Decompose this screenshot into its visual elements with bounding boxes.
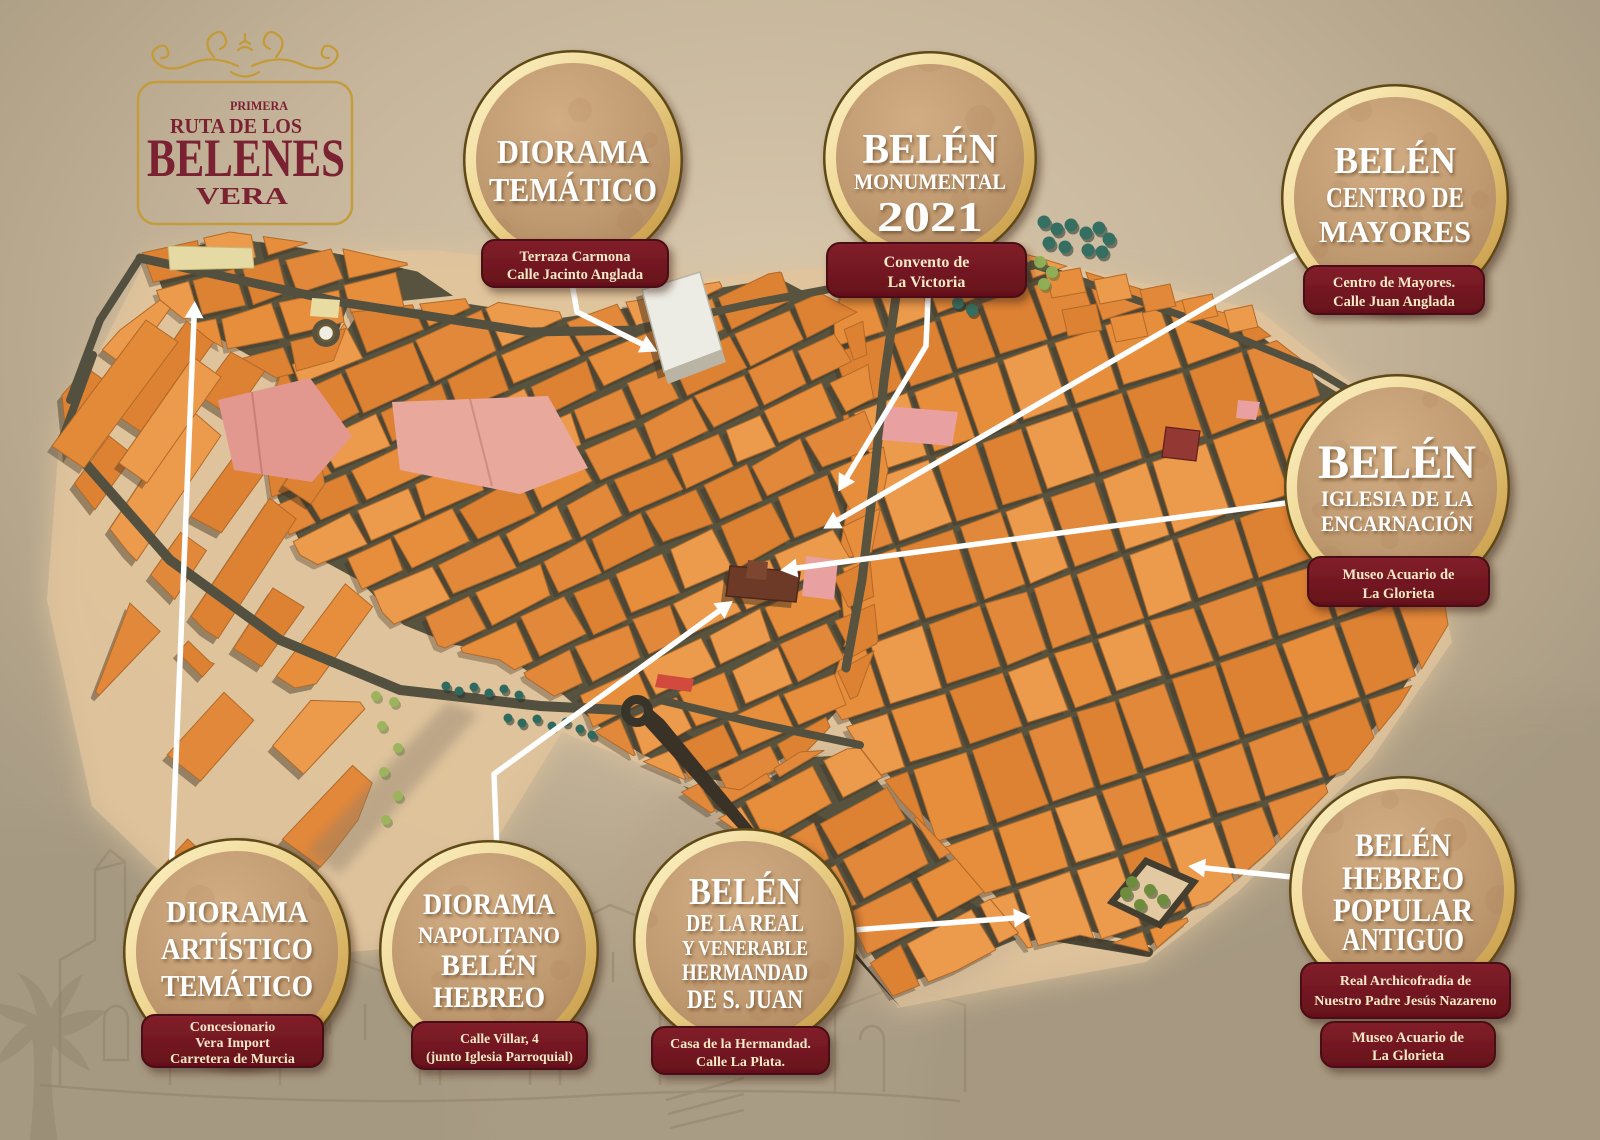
svg-text:Concesionario: Concesionario xyxy=(190,1020,276,1035)
svg-text:HEBREO: HEBREO xyxy=(1342,861,1464,897)
svg-text:(junto Iglesia Parroquial): (junto Iglesia Parroquial) xyxy=(426,1049,573,1064)
svg-text:Casa de la Hermandad.: Casa de la Hermandad. xyxy=(670,1037,811,1052)
svg-text:PRIMERA: PRIMERA xyxy=(230,99,288,113)
svg-text:Museo Acuario de: Museo Acuario de xyxy=(1343,567,1456,583)
svg-text:Nuestro Padre Jesús Nazareno: Nuestro Padre Jesús Nazareno xyxy=(1314,994,1496,1009)
svg-text:Museo Acuario de: Museo Acuario de xyxy=(1352,1030,1465,1046)
svg-text:NAPOLITANO: NAPOLITANO xyxy=(418,923,560,948)
svg-text:Real Archicofradía de: Real Archicofradía de xyxy=(1340,974,1471,989)
svg-text:VERA: VERA xyxy=(196,184,289,210)
svg-text:Centro de Mayores.: Centro de Mayores. xyxy=(1333,275,1455,291)
svg-text:Calle La Plata.: Calle La Plata. xyxy=(696,1055,785,1070)
svg-text:MAYORES: MAYORES xyxy=(1319,214,1471,249)
svg-text:La Glorieta: La Glorieta xyxy=(1372,1048,1445,1064)
svg-text:DIORAMA: DIORAMA xyxy=(423,888,555,921)
svg-text:IGLESIA DE LA: IGLESIA DE LA xyxy=(1321,486,1473,511)
svg-text:Terraza Carmona: Terraza Carmona xyxy=(519,249,631,265)
svg-text:Convento de: Convento de xyxy=(884,254,970,271)
svg-text:BELÉN: BELÉN xyxy=(1355,827,1451,864)
svg-text:MONUMENTAL: MONUMENTAL xyxy=(854,169,1006,194)
svg-text:DE LA REAL: DE LA REAL xyxy=(686,911,804,937)
svg-text:ARTÍSTICO: ARTÍSTICO xyxy=(161,931,313,966)
svg-text:Carretera de Murcia: Carretera de Murcia xyxy=(170,1052,295,1067)
svg-text:Y VENERABLE: Y VENERABLE xyxy=(682,936,808,960)
svg-text:Vera Import: Vera Import xyxy=(195,1036,270,1051)
svg-text:La Victoria: La Victoria xyxy=(888,274,966,291)
svg-text:TEMÁTICO: TEMÁTICO xyxy=(489,172,657,209)
svg-text:BELÉN: BELÉN xyxy=(689,871,801,913)
svg-text:BELÉN: BELÉN xyxy=(863,126,998,173)
svg-text:DIORAMA: DIORAMA xyxy=(497,134,649,171)
svg-text:La Glorieta: La Glorieta xyxy=(1362,586,1435,602)
svg-text:Calle Juan Anglada: Calle Juan Anglada xyxy=(1333,294,1455,310)
svg-text:BELÉN: BELÉN xyxy=(441,949,537,982)
svg-text:HEBREO: HEBREO xyxy=(433,981,545,1014)
svg-text:CENTRO DE: CENTRO DE xyxy=(1326,183,1464,214)
svg-text:DE S. JUAN: DE S. JUAN xyxy=(687,985,803,1014)
svg-text:ANTIGUO: ANTIGUO xyxy=(1342,921,1464,957)
svg-text:HERMANDAD: HERMANDAD xyxy=(682,960,808,985)
svg-text:DIORAMA: DIORAMA xyxy=(166,894,309,929)
svg-text:ENCARNACIÓN: ENCARNACIÓN xyxy=(1321,511,1473,536)
svg-text:BELENES: BELENES xyxy=(147,128,345,188)
svg-text:Calle Villar, 4: Calle Villar, 4 xyxy=(460,1031,539,1046)
svg-text:TEMÁTICO: TEMÁTICO xyxy=(161,968,313,1003)
svg-text:BELÉN: BELÉN xyxy=(1334,140,1456,182)
svg-text:Calle Jacinto Anglada: Calle Jacinto Anglada xyxy=(507,267,644,283)
svg-text:BELÉN: BELÉN xyxy=(1318,436,1476,489)
svg-text:2021: 2021 xyxy=(877,195,983,241)
